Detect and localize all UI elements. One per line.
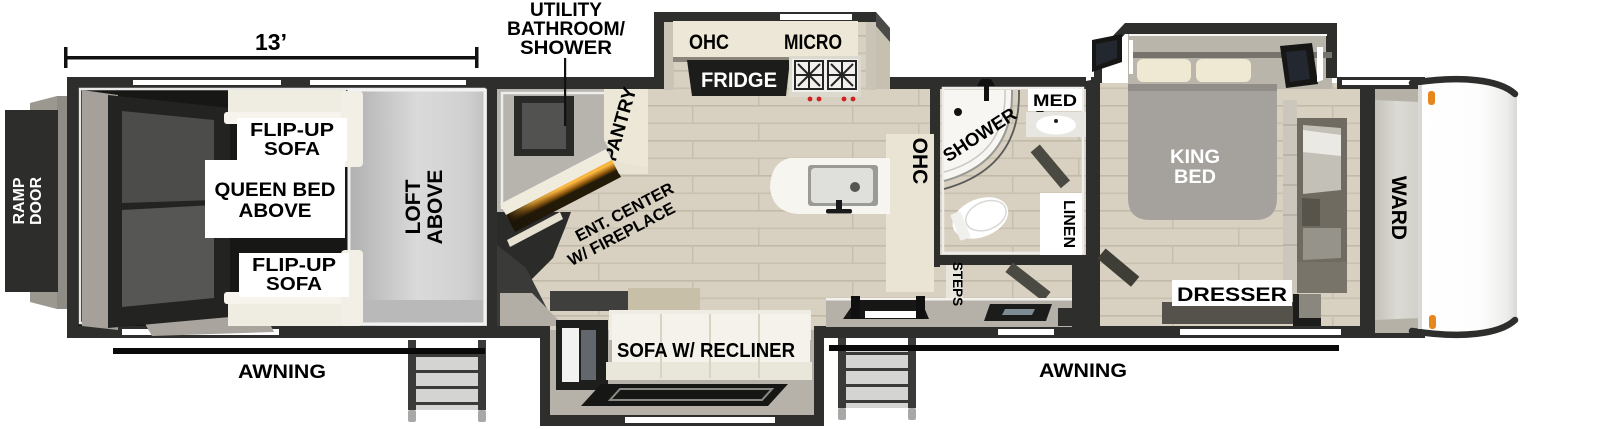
svg-text:SOFA W/ RECLINER: SOFA W/ RECLINER (617, 339, 795, 362)
svg-text:SOFA: SOFA (266, 274, 322, 294)
svg-text:MICRO: MICRO (784, 31, 842, 54)
svg-text:AWNING: AWNING (1039, 361, 1127, 382)
svg-text:FLIP-UP: FLIP-UP (252, 255, 336, 275)
svg-text:BATHROOM/: BATHROOM/ (507, 19, 626, 40)
svg-text:UTILITY: UTILITY (530, 0, 602, 21)
svg-text:KING: KING (1170, 147, 1220, 168)
svg-text:SHOWER: SHOWER (520, 38, 612, 59)
svg-text:FLIP-UP: FLIP-UP (250, 120, 334, 140)
svg-text:ABOVE: ABOVE (239, 201, 312, 222)
svg-text:FRIDGE: FRIDGE (701, 69, 777, 92)
svg-text:BED: BED (1174, 167, 1216, 188)
svg-text:13’: 13’ (255, 29, 287, 55)
svg-text:AWNING: AWNING (238, 362, 326, 383)
svg-text:DRESSER: DRESSER (1177, 285, 1287, 306)
svg-text:SOFA: SOFA (264, 139, 320, 159)
svg-text:STEPS: STEPS (950, 262, 965, 306)
svg-text:MED: MED (1033, 91, 1077, 110)
svg-text:WARD: WARD (1387, 176, 1410, 240)
svg-text:LOFTABOVE: LOFTABOVE (402, 170, 447, 245)
svg-text:RAMPDOOR: RAMPDOOR (11, 177, 45, 225)
svg-text:OHC: OHC (689, 31, 729, 54)
svg-text:OHC: OHC (908, 138, 931, 185)
svg-text:QUEEN BED: QUEEN BED (215, 180, 336, 201)
svg-text:LINEN: LINEN (1060, 200, 1077, 248)
